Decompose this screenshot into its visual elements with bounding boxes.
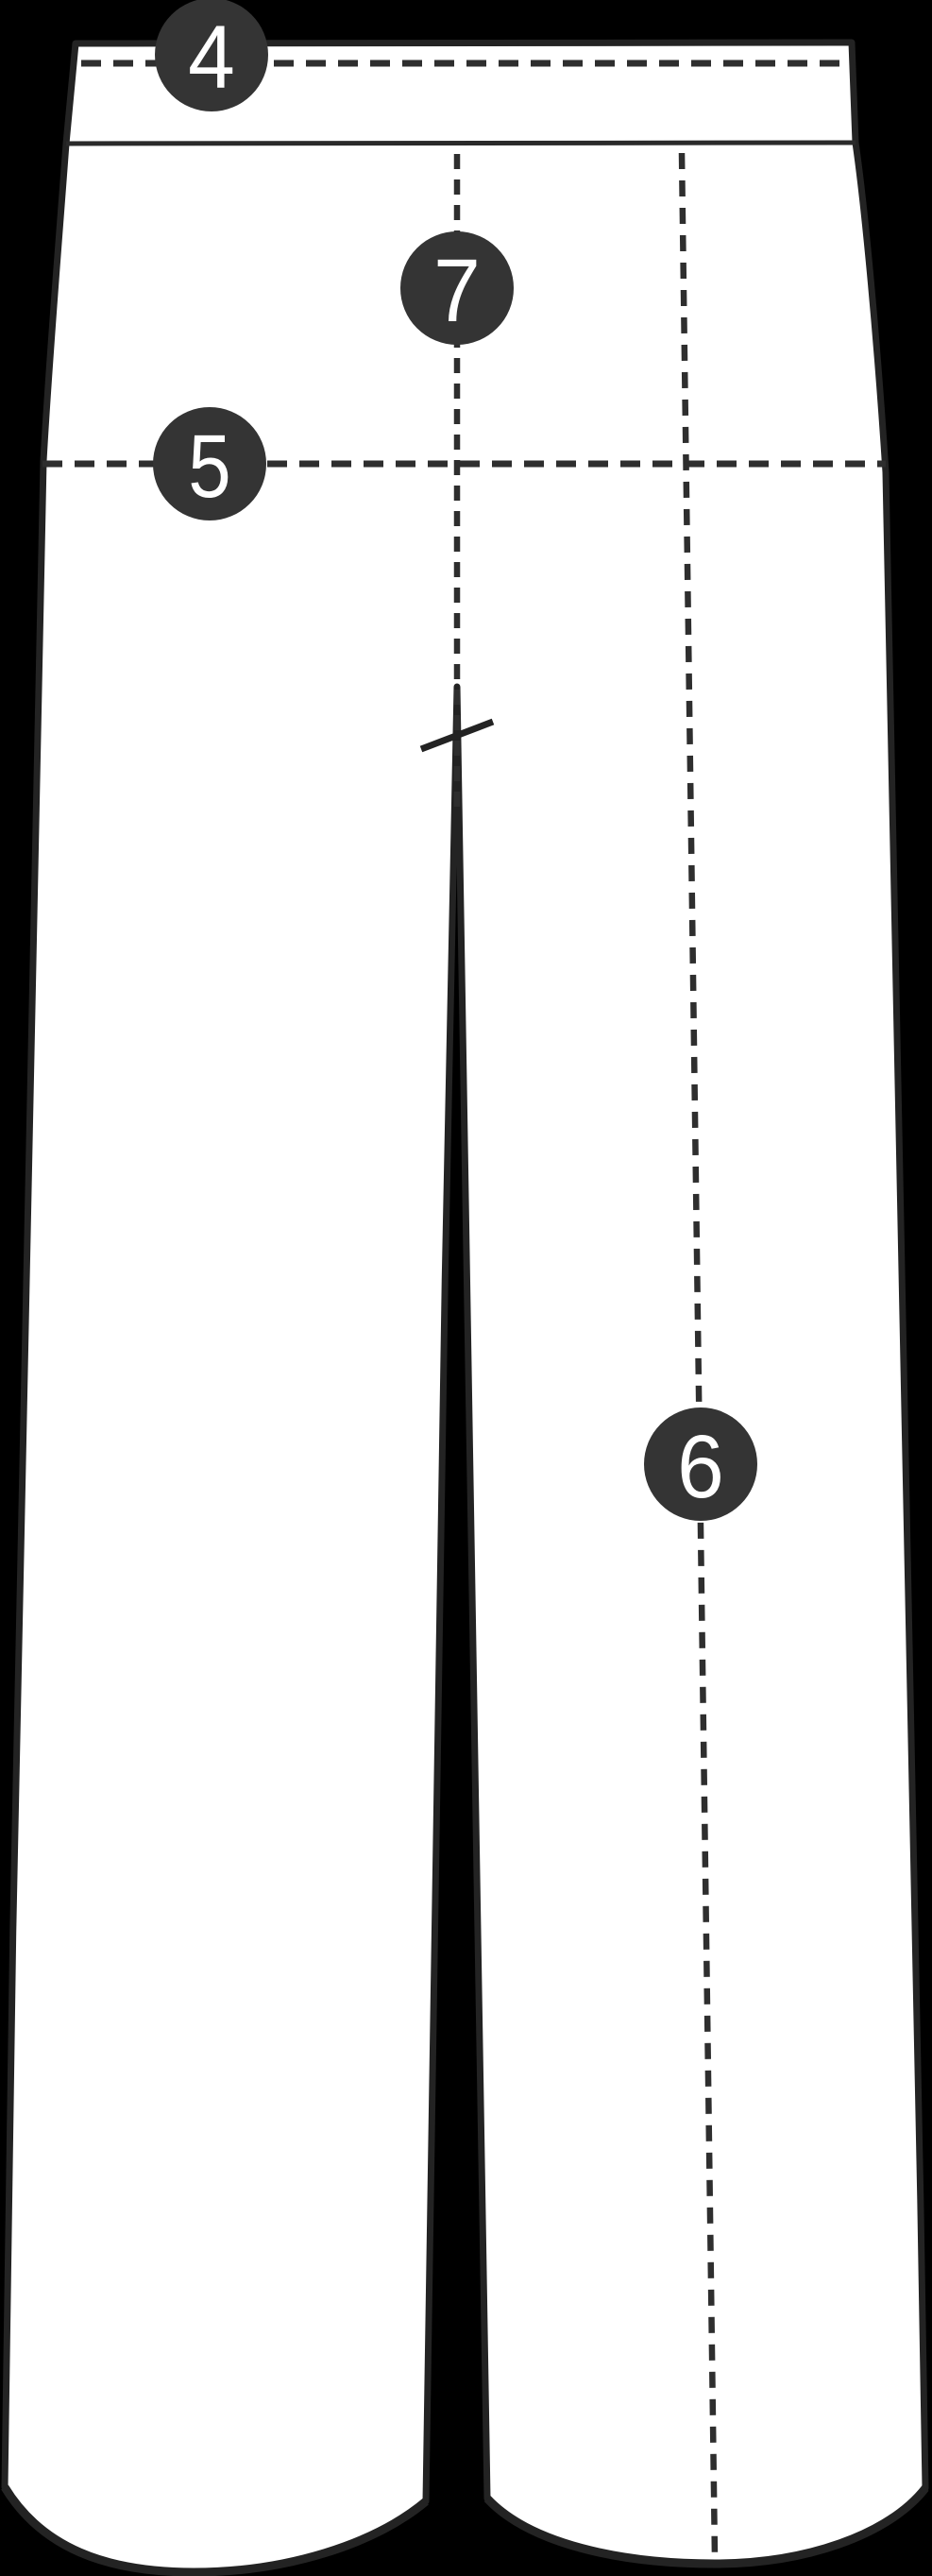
svg-text:7: 7 [433, 240, 481, 340]
svg-text:4: 4 [188, 7, 235, 107]
svg-text:5: 5 [188, 416, 230, 516]
svg-text:6: 6 [677, 1416, 724, 1516]
